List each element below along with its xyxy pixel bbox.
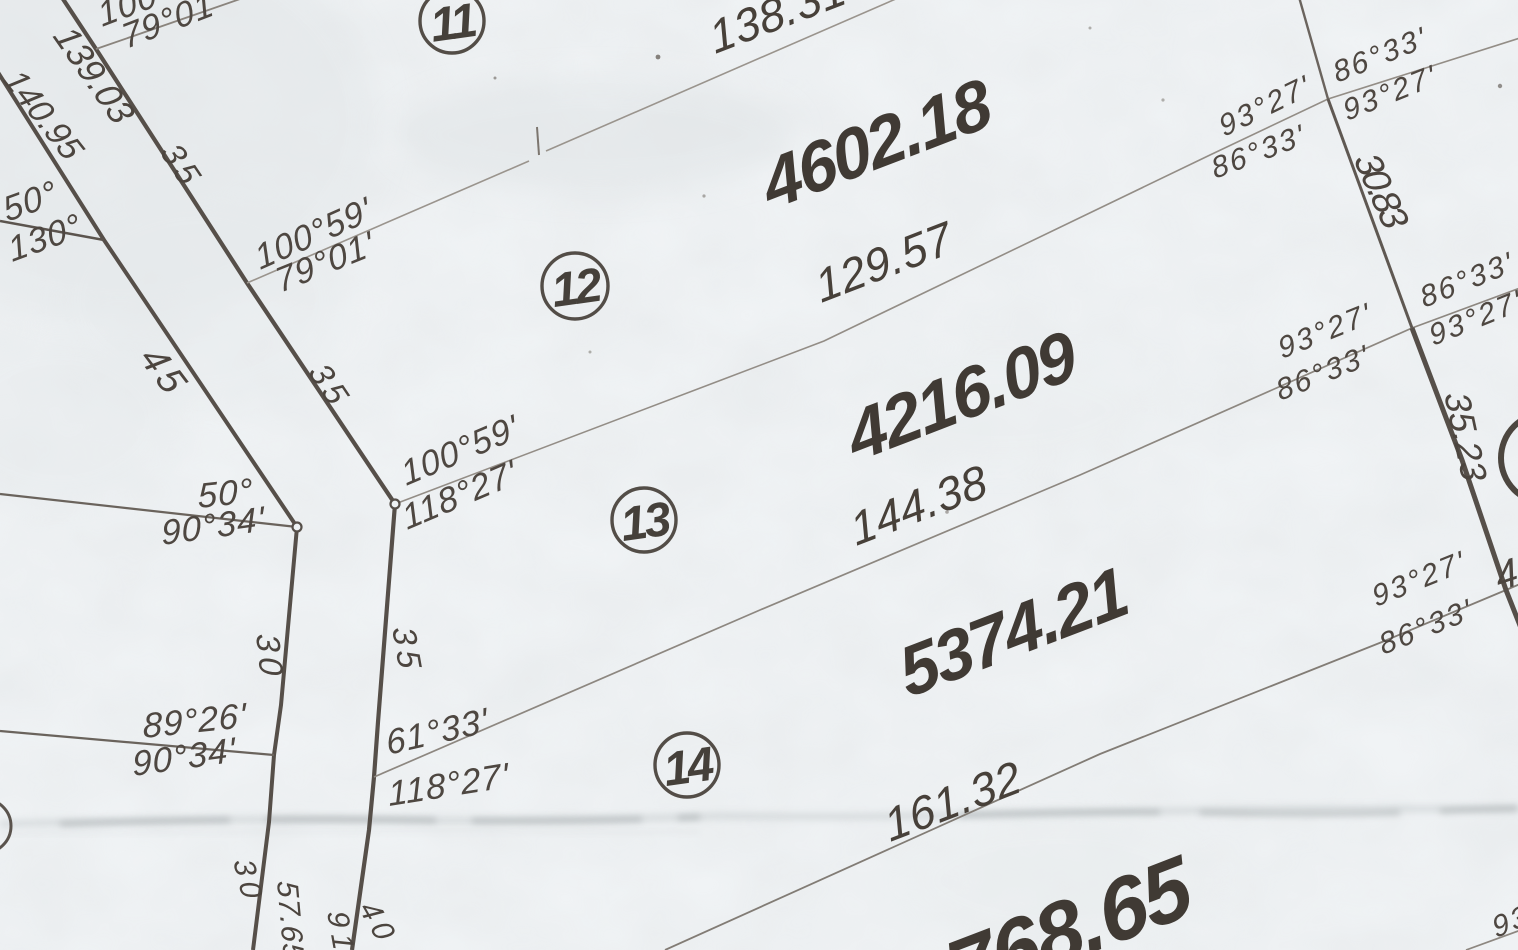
svg-text:57.65: 57.65	[270, 881, 310, 950]
svg-text:14: 14	[660, 738, 717, 797]
svg-text:11: 11	[427, 0, 479, 53]
svg-text:30: 30	[248, 633, 290, 680]
